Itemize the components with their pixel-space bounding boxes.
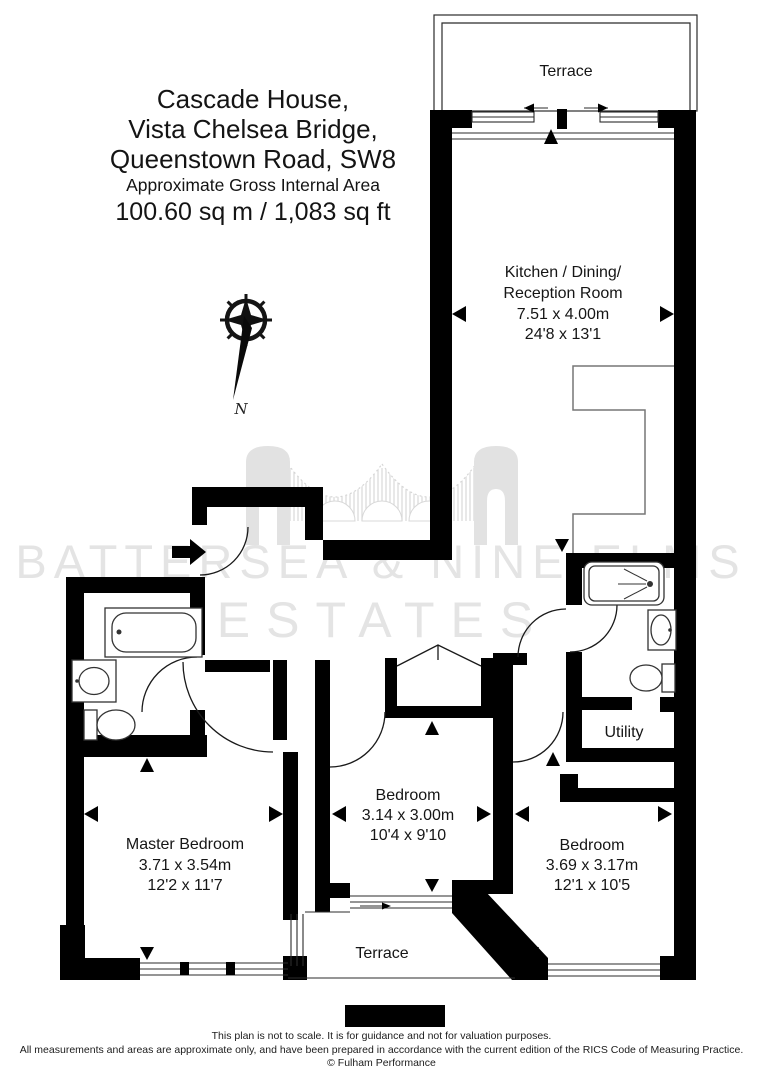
- compass-rose-icon: N: [220, 294, 272, 418]
- terrace-top-label: Terrace: [539, 63, 592, 80]
- disclaimer-line-3: © Fulham Performance: [0, 1057, 763, 1071]
- bathroom-sink: [72, 660, 116, 702]
- disclaimer: This plan is not to scale. It is for gui…: [0, 1030, 763, 1071]
- bedroom-right-dim-ft: 12'1 x 10'5: [554, 877, 630, 894]
- kitchen-counter: [573, 366, 674, 553]
- compass-north-label: N: [233, 400, 248, 418]
- bathroom-door-arc: [142, 657, 197, 712]
- bedroom-mid-door-arc: [330, 712, 385, 767]
- master-bedroom-dim-ft: 12'2 x 11'7: [147, 877, 222, 894]
- bedroom-right-door-arc: [513, 712, 563, 762]
- shower-room-door-arc: [570, 605, 617, 652]
- bedroom-right-dim-m: 3.69 x 3.17m: [546, 857, 639, 874]
- bathroom-toilet: [84, 710, 135, 740]
- kitchen-label-2: Reception Room: [503, 285, 622, 302]
- utility-label: Utility: [604, 724, 643, 741]
- master-bedroom-dim-m: 3.71 x 3.54m: [139, 857, 232, 874]
- shower-room-toilet: [630, 664, 675, 692]
- bathtub: [105, 608, 202, 657]
- shower: [584, 562, 664, 605]
- kitchen-dim-m: 7.51 x 4.00m: [517, 306, 610, 323]
- terrace-bottom-label: Terrace: [355, 945, 408, 962]
- bedroom-mid-label: Bedroom: [376, 787, 441, 804]
- scale-bar: [345, 1005, 445, 1027]
- watermark-line-2: ESTATES: [217, 592, 549, 648]
- disclaimer-line-2: All measurements and areas are approxima…: [0, 1044, 763, 1058]
- bedroom-mid-dim-ft: 10'4 x 9'10: [370, 827, 446, 844]
- floorplan-page: Cascade House, Vista Chelsea Bridge, Que…: [0, 0, 763, 1080]
- kitchen-label-1: Kitchen / Dining/: [505, 264, 622, 281]
- master-bedroom-label: Master Bedroom: [126, 836, 244, 853]
- bedroom-right-label: Bedroom: [560, 837, 625, 854]
- closet-doors: [397, 645, 481, 666]
- bedroom-mid-dim-m: 3.14 x 3.00m: [362, 807, 455, 824]
- disclaimer-line-1: This plan is not to scale. It is for gui…: [0, 1030, 763, 1044]
- floorplan-drawing: BATTERSEA & NINE ELMS ESTATES: [0, 0, 763, 1080]
- kitchen-dim-ft: 24'8 x 13'1: [525, 326, 601, 343]
- shower-room-sink: [648, 610, 676, 650]
